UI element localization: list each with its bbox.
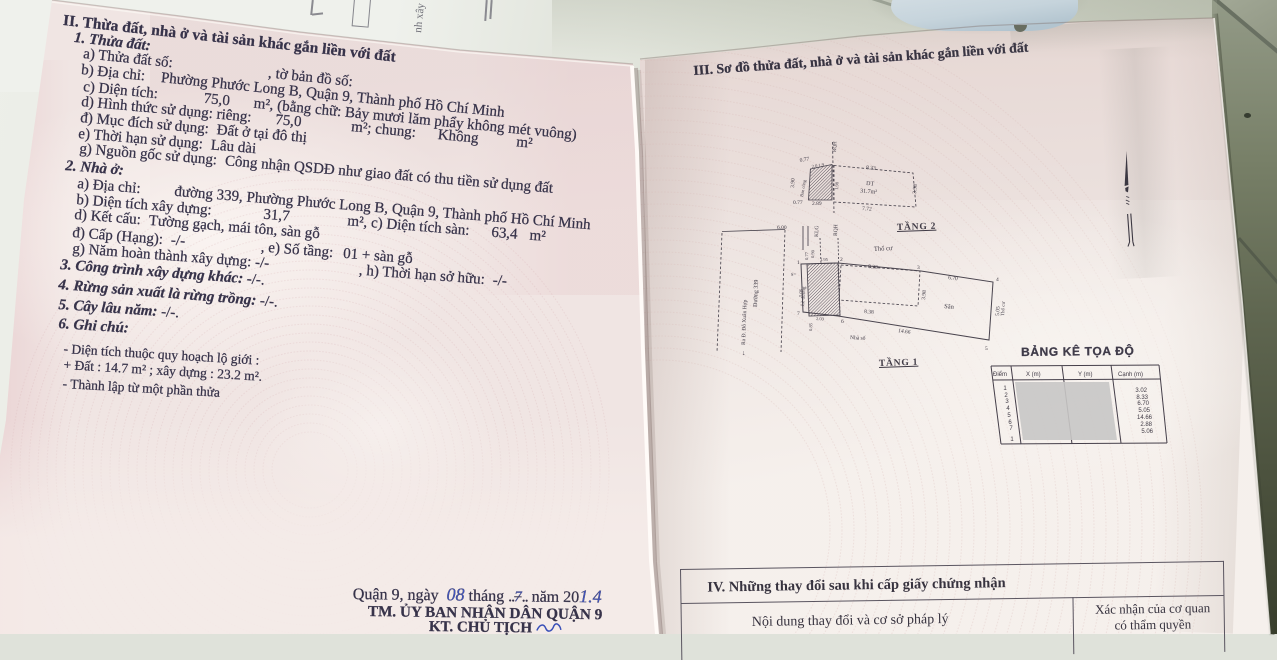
svg-text:1: 1 bbox=[1010, 437, 1014, 443]
svg-text:RQH: RQH bbox=[833, 141, 838, 152]
svg-text:14.66: 14.66 bbox=[898, 328, 911, 336]
svg-text:2.03: 2.03 bbox=[816, 316, 825, 321]
svg-text:0.77: 0.77 bbox=[793, 200, 803, 206]
svg-text:1.95: 1.95 bbox=[820, 257, 829, 262]
svg-text:1: 1 bbox=[1003, 386, 1007, 392]
svg-text:3.98: 3.98 bbox=[921, 290, 928, 300]
svg-text:14.66: 14.66 bbox=[1137, 415, 1153, 421]
svg-text:3.90: 3.90 bbox=[790, 178, 797, 188]
svg-text:4: 4 bbox=[1006, 406, 1010, 412]
svg-text:1: 1 bbox=[797, 260, 800, 266]
svg-text:6.70: 6.70 bbox=[1137, 401, 1149, 407]
svg-text:8.33: 8.33 bbox=[868, 264, 878, 271]
svg-text:4: 4 bbox=[996, 277, 999, 283]
svg-text:Sân: Sân bbox=[944, 303, 955, 311]
svg-text:0.85: 0.85 bbox=[808, 322, 813, 331]
svg-text:7: 7 bbox=[1009, 426, 1013, 432]
svg-text:2.88: 2.88 bbox=[1140, 422, 1152, 428]
svg-text:0.77: 0.77 bbox=[804, 251, 809, 260]
svg-text:3: 3 bbox=[917, 265, 920, 271]
svg-text:Ra Đ. Đỗ Xuân Hợp: Ra Đ. Đỗ Xuân Hợp bbox=[740, 299, 749, 345]
svg-text:3.02: 3.02 bbox=[1135, 388, 1147, 394]
svg-text:Y (m): Y (m) bbox=[1078, 372, 1093, 378]
svg-text:6.00: 6.00 bbox=[777, 225, 787, 231]
svg-text:Nhà số: Nhà số bbox=[850, 334, 866, 342]
svg-text:0.77: 0.77 bbox=[799, 156, 810, 164]
svg-text:8.38: 8.38 bbox=[864, 309, 874, 316]
svg-text:KLG: KLG bbox=[814, 226, 820, 238]
svg-text:8.33: 8.33 bbox=[866, 165, 876, 172]
svg-text:↓: ↓ bbox=[742, 349, 746, 357]
svg-text:RQH: RQH bbox=[833, 224, 839, 236]
svg-text:Điểm: Điểm bbox=[993, 371, 1007, 378]
svg-text:2.89: 2.89 bbox=[812, 201, 822, 207]
svg-text:Ban công: Ban công bbox=[799, 179, 807, 197]
svg-text:7: 7 bbox=[797, 311, 800, 317]
svg-text:5.05: 5.05 bbox=[1138, 408, 1150, 414]
svg-text:1.98: 1.98 bbox=[834, 181, 840, 190]
svg-text:5: 5 bbox=[1007, 413, 1011, 419]
svg-text:3: 3 bbox=[1005, 399, 1009, 405]
svg-text:Cạnh (m): Cạnh (m) bbox=[1118, 372, 1143, 378]
svg-text:6.70: 6.70 bbox=[948, 275, 959, 282]
svg-text:3.98: 3.98 bbox=[912, 184, 919, 194]
svg-text:TẦNG 2: TẦNG 2 bbox=[897, 219, 937, 233]
svg-text:5: 5 bbox=[985, 346, 988, 352]
svg-text:DT: DT bbox=[866, 181, 875, 188]
svg-text:Thổ cư: Thổ cư bbox=[874, 245, 893, 253]
svg-text:Đường 339: Đường 339 bbox=[753, 280, 760, 307]
svg-text:0.90: 0.90 bbox=[810, 249, 815, 258]
svg-text:5.06: 5.06 bbox=[798, 288, 803, 297]
svg-text:S=: S= bbox=[791, 272, 797, 277]
svg-text:X (m): X (m) bbox=[1026, 372, 1041, 378]
svg-text:5.06: 5.06 bbox=[1141, 429, 1153, 435]
svg-text:31.7m²: 31.7m² bbox=[860, 189, 878, 196]
svg-text:Thổ cư: Thổ cư bbox=[1000, 301, 1007, 316]
svg-text:7.72: 7.72 bbox=[862, 206, 872, 213]
svg-text:2: 2 bbox=[840, 257, 843, 263]
svg-text:TẦNG 1: TẦNG 1 bbox=[879, 355, 919, 369]
svg-text:6: 6 bbox=[841, 319, 844, 325]
